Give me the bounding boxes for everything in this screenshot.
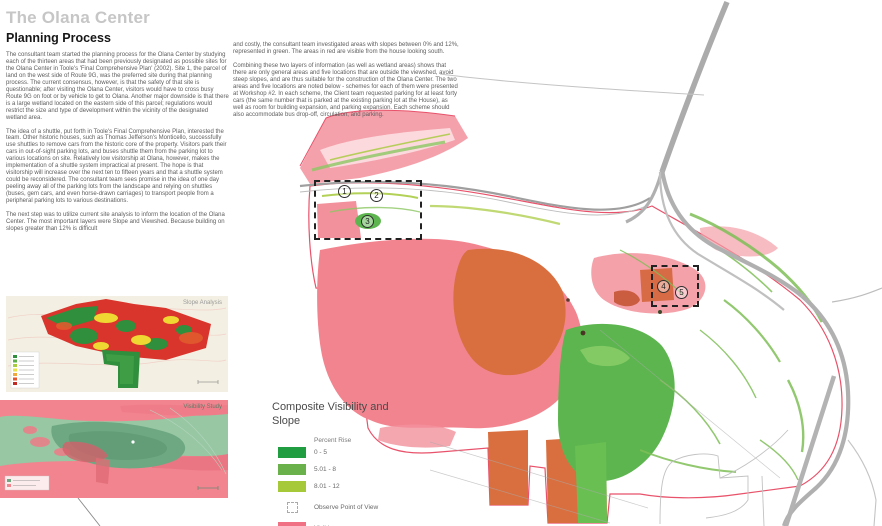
- map-legend: Composite Visibility and Slope Percent R…: [272, 400, 447, 526]
- legend-row: Visible: [272, 523, 447, 526]
- legend-swatch-green-dark: [278, 447, 306, 458]
- visibility-map-label: Visibility Study: [183, 404, 222, 410]
- slope-analysis-minimap: Slope Analysis: [6, 296, 228, 392]
- visibility-study-minimap: Visibility Study: [0, 400, 228, 498]
- legend-row: 5.01 - 8: [272, 464, 447, 476]
- green-contours: [620, 214, 822, 480]
- slope-map-label: Slope Analysis: [183, 300, 222, 306]
- paragraph: and costly, the consultant team investig…: [233, 42, 459, 56]
- map-arm-region: [300, 110, 468, 184]
- legend-row: Observe Point of View: [272, 502, 447, 514]
- study-area-box-west: [314, 180, 422, 240]
- legend-row: 0 - 5: [272, 447, 447, 459]
- location-marker-1: 1: [338, 185, 351, 198]
- legend-label: 5.01 - 8: [314, 466, 336, 473]
- location-marker-5: 5: [675, 286, 688, 299]
- page-title: The Olana Center: [6, 8, 229, 28]
- paragraph: The idea of a shuttle, put forth in Tool…: [6, 129, 229, 205]
- text-column-1: The Olana Center Planning Process The co…: [6, 8, 229, 233]
- legend-title: Composite Visibility and Slope: [272, 400, 397, 429]
- legend-header: Percent Rise: [314, 437, 447, 444]
- visibility-study-graphic: [0, 400, 228, 498]
- legend-swatch-visible-pink: [278, 522, 306, 526]
- legend-label: 0 - 5: [314, 449, 327, 456]
- location-marker-4: 4: [657, 280, 670, 293]
- location-marker-2: 2: [370, 189, 383, 202]
- text-column-2: and costly, the consultant team investig…: [233, 42, 459, 119]
- section-heading: Planning Process: [6, 31, 229, 45]
- paragraph: The consultant team started the planning…: [6, 52, 229, 122]
- leader-line: [78, 498, 100, 526]
- slope-map-mini-legend: [11, 352, 39, 388]
- location-marker-3: 3: [361, 215, 374, 228]
- visibility-map-mini-legend: [5, 476, 49, 490]
- legend-swatch-green-mid: [278, 464, 306, 475]
- legend-swatch-green-light: [278, 481, 306, 492]
- legend-label: Observe Point of View: [314, 504, 378, 511]
- planning-document-page: The Olana Center Planning Process The co…: [0, 0, 882, 526]
- legend-label: 8.01 - 12: [314, 483, 340, 490]
- paragraph: The next step was to utilize current sit…: [6, 212, 229, 233]
- legend-row: 8.01 - 12: [272, 481, 447, 493]
- legend-swatch-observe-point-icon: [278, 502, 306, 513]
- paragraph: Combining these two layers of informatio…: [233, 63, 459, 119]
- slope-analysis-graphic: [6, 296, 228, 392]
